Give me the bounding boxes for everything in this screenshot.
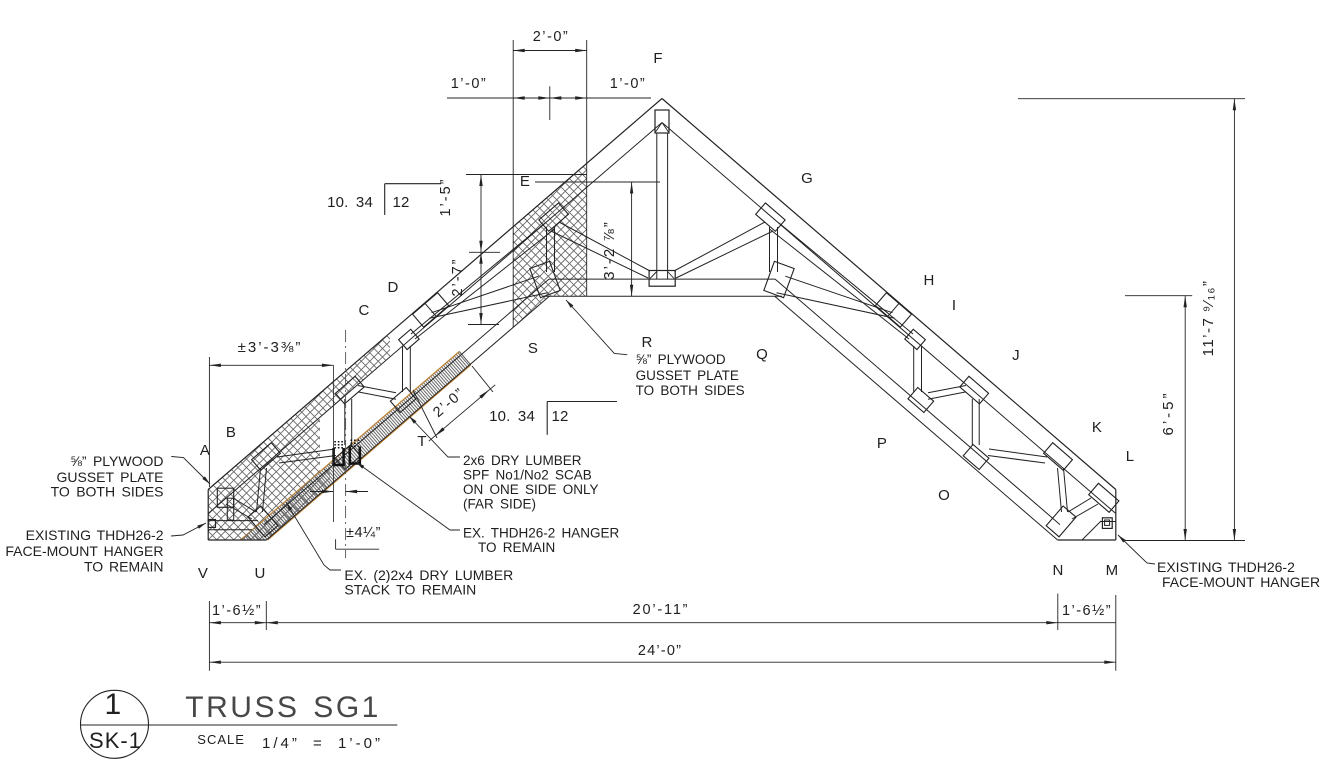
svg-text:B: B (226, 424, 236, 441)
svg-text:E: E (520, 173, 530, 190)
svg-text:1’-6½”: 1’-6½” (1062, 603, 1112, 619)
svg-text:G: G (801, 170, 813, 187)
svg-text:T: T (417, 433, 426, 450)
svg-text:SK-1: SK-1 (89, 728, 142, 753)
svg-text:24’-0”: 24’-0” (638, 643, 682, 659)
svg-text:⅝” PLYWOOD: ⅝” PLYWOOD (70, 453, 163, 469)
svg-text:1’-0”: 1’-0” (451, 76, 488, 92)
svg-text:(FAR SIDE): (FAR SIDE) (463, 497, 536, 512)
svg-text:±3’-3⅜”: ±3’-3⅜” (238, 339, 303, 356)
svg-text:2x6 DRY LUMBER: 2x6 DRY LUMBER (463, 453, 582, 468)
svg-text:10. 34: 10. 34 (489, 408, 535, 425)
svg-text:TO BOTH SIDES: TO BOTH SIDES (636, 383, 745, 398)
svg-text:3’-2 ⅞”: 3’-2 ⅞” (601, 220, 618, 280)
svg-text:S: S (528, 340, 538, 357)
svg-text:Q: Q (756, 346, 768, 363)
svg-text:FACE-MOUNT HANGER: FACE-MOUNT HANGER (5, 543, 163, 559)
svg-text:F: F (653, 50, 662, 67)
svg-text:GUSSET PLATE: GUSSET PLATE (636, 368, 739, 383)
svg-text:10. 34: 10. 34 (327, 194, 373, 211)
svg-text:2’-0”: 2’-0” (533, 29, 570, 45)
svg-text:2’-7”: 2’-7” (450, 257, 466, 296)
svg-text:I: I (952, 297, 956, 314)
svg-text:12: 12 (551, 408, 568, 425)
svg-text:SPF No1/No2 SCAB: SPF No1/No2 SCAB (463, 468, 592, 483)
svg-text:EXISTING THDH26-2: EXISTING THDH26-2 (1157, 559, 1295, 575)
svg-text:1’-0”: 1’-0” (610, 76, 647, 92)
svg-text:±4¼”: ±4¼” (346, 525, 381, 541)
svg-text:EXISTING THDH26-2: EXISTING THDH26-2 (26, 527, 164, 543)
svg-text:O: O (938, 487, 950, 504)
svg-text:TO REMAIN: TO REMAIN (478, 540, 555, 555)
svg-text:R: R (641, 334, 652, 351)
svg-text:1/4” = 1’-0”: 1/4” = 1’-0” (262, 735, 383, 752)
svg-text:⅝” PLYWOOD: ⅝” PLYWOOD (636, 352, 726, 367)
svg-text:6’-5”: 6’-5” (1160, 390, 1177, 435)
svg-text:EX. (2)2x4 DRY LUMBER: EX. (2)2x4 DRY LUMBER (344, 567, 513, 583)
svg-text:D: D (387, 279, 398, 296)
svg-text:C: C (358, 302, 369, 319)
svg-text:11’-7 ⁹⁄₁₆”: 11’-7 ⁹⁄₁₆” (1200, 280, 1217, 357)
svg-text:TO REMAIN: TO REMAIN (84, 558, 164, 574)
svg-text:FACE-MOUNT HANGER: FACE-MOUNT HANGER (1162, 574, 1320, 590)
svg-text:TRUSS SG1: TRUSS SG1 (185, 691, 381, 724)
svg-text:A: A (200, 442, 210, 459)
svg-text:P: P (877, 435, 887, 452)
svg-text:1’-6½”: 1’-6½” (212, 603, 262, 619)
svg-text:1: 1 (105, 688, 122, 721)
svg-text:20’-11”: 20’-11” (633, 602, 690, 618)
svg-text:STACK TO REMAIN: STACK TO REMAIN (344, 582, 476, 598)
svg-text:12: 12 (392, 194, 409, 211)
svg-text:SCALE: SCALE (197, 732, 245, 747)
svg-text:V: V (198, 565, 208, 582)
svg-text:J: J (1012, 347, 1020, 364)
svg-text:ON ONE SIDE ONLY: ON ONE SIDE ONLY (463, 482, 599, 497)
svg-text:K: K (1092, 419, 1102, 436)
svg-text:L: L (1126, 448, 1135, 465)
svg-text:EX. THDH26-2 HANGER: EX. THDH26-2 HANGER (463, 526, 620, 541)
svg-text:H: H (923, 272, 934, 289)
svg-text:M: M (1106, 562, 1119, 579)
svg-text:TO BOTH SIDES: TO BOTH SIDES (51, 483, 164, 499)
svg-text:U: U (254, 565, 265, 582)
svg-text:N: N (1052, 562, 1063, 579)
